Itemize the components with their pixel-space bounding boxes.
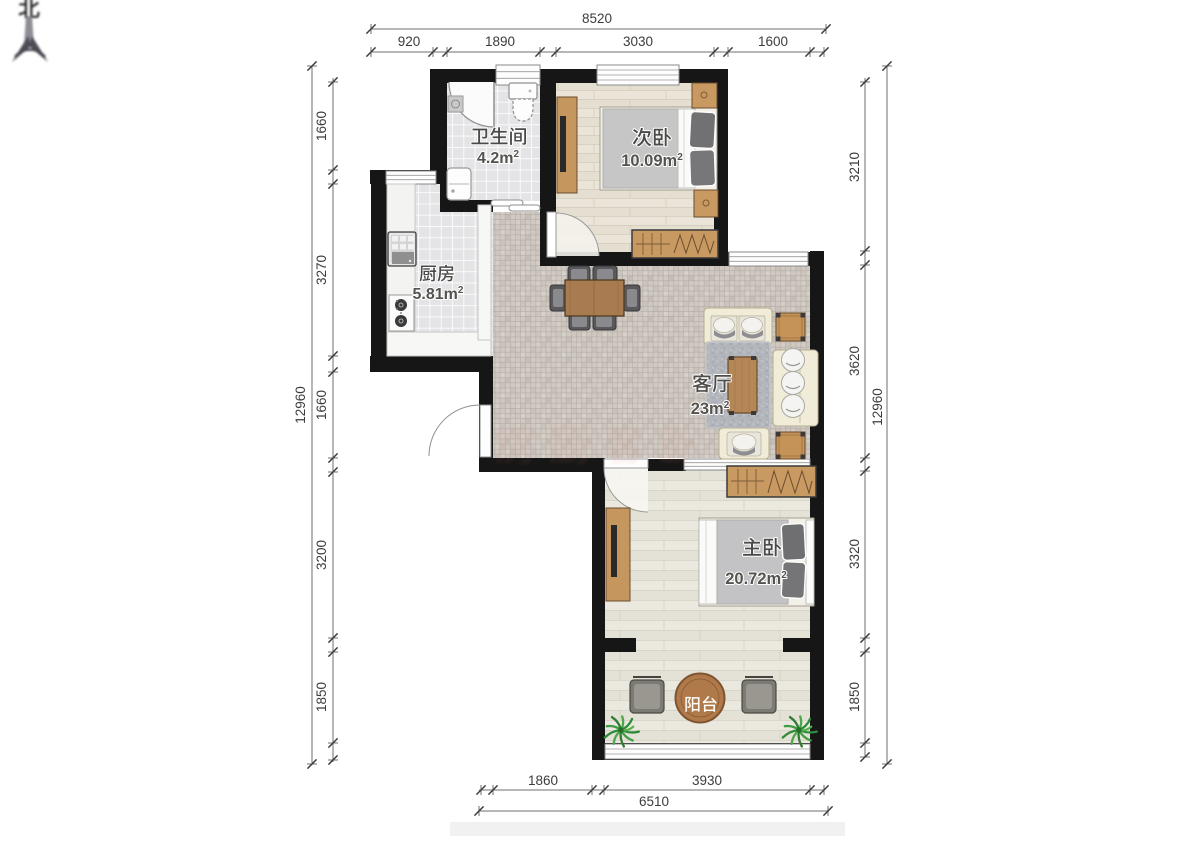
svg-text:12960: 12960 (293, 386, 308, 424)
svg-text:1660: 1660 (314, 111, 329, 141)
svg-text:1600: 1600 (758, 34, 788, 49)
svg-text:1850: 1850 (847, 682, 862, 712)
svg-text:10.09m2: 10.09m2 (621, 152, 683, 170)
svg-text:1850: 1850 (314, 682, 329, 712)
svg-text:3620: 3620 (847, 346, 862, 376)
svg-text:3200: 3200 (314, 540, 329, 570)
svg-text:3270: 3270 (314, 255, 329, 285)
svg-text:6510: 6510 (639, 794, 669, 809)
svg-text:1860: 1860 (528, 773, 558, 788)
svg-text:3030: 3030 (623, 34, 653, 49)
svg-text:20.72m2: 20.72m2 (725, 570, 787, 588)
svg-text:3930: 3930 (692, 773, 722, 788)
svg-text:3320: 3320 (847, 539, 862, 569)
svg-text:5.81m2: 5.81m2 (413, 285, 464, 303)
svg-text:1890: 1890 (485, 34, 515, 49)
svg-text:8520: 8520 (582, 11, 612, 26)
svg-text:4.2m2: 4.2m2 (477, 149, 519, 167)
svg-text:920: 920 (398, 34, 421, 49)
svg-text:3210: 3210 (847, 152, 862, 182)
svg-text:12960: 12960 (870, 388, 885, 426)
svg-text:1660: 1660 (314, 390, 329, 420)
